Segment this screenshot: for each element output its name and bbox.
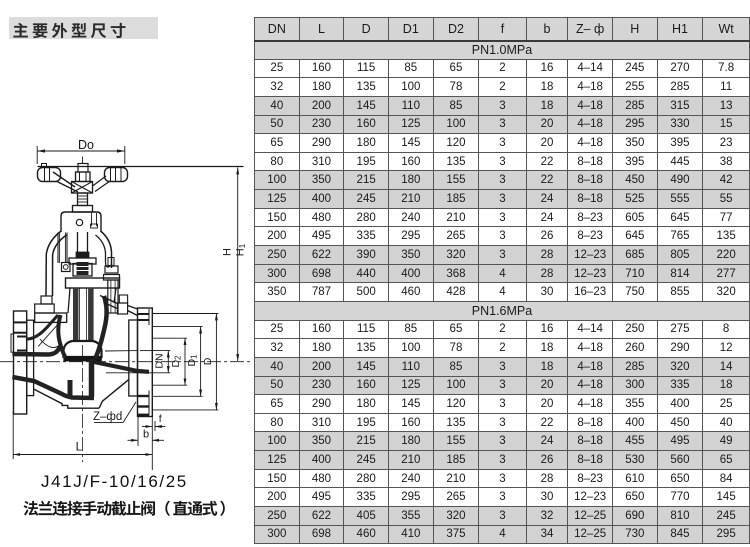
svg-text:L: L xyxy=(76,440,83,454)
svg-text:D1: D1 xyxy=(186,354,199,367)
svg-text:b: b xyxy=(143,429,149,441)
svg-text:f: f xyxy=(159,413,162,425)
svg-text:D: D xyxy=(202,357,214,365)
svg-text:H1: H1 xyxy=(235,243,248,256)
svg-text:H: H xyxy=(222,248,234,256)
svg-text:Z–фd: Z–фd xyxy=(93,411,122,423)
svg-text:D2: D2 xyxy=(170,355,183,368)
svg-text:DN: DN xyxy=(154,353,166,368)
svg-text:Do: Do xyxy=(78,138,94,152)
svg-text:J41J/F-10/16/25: J41J/F-10/16/25 xyxy=(41,472,188,491)
